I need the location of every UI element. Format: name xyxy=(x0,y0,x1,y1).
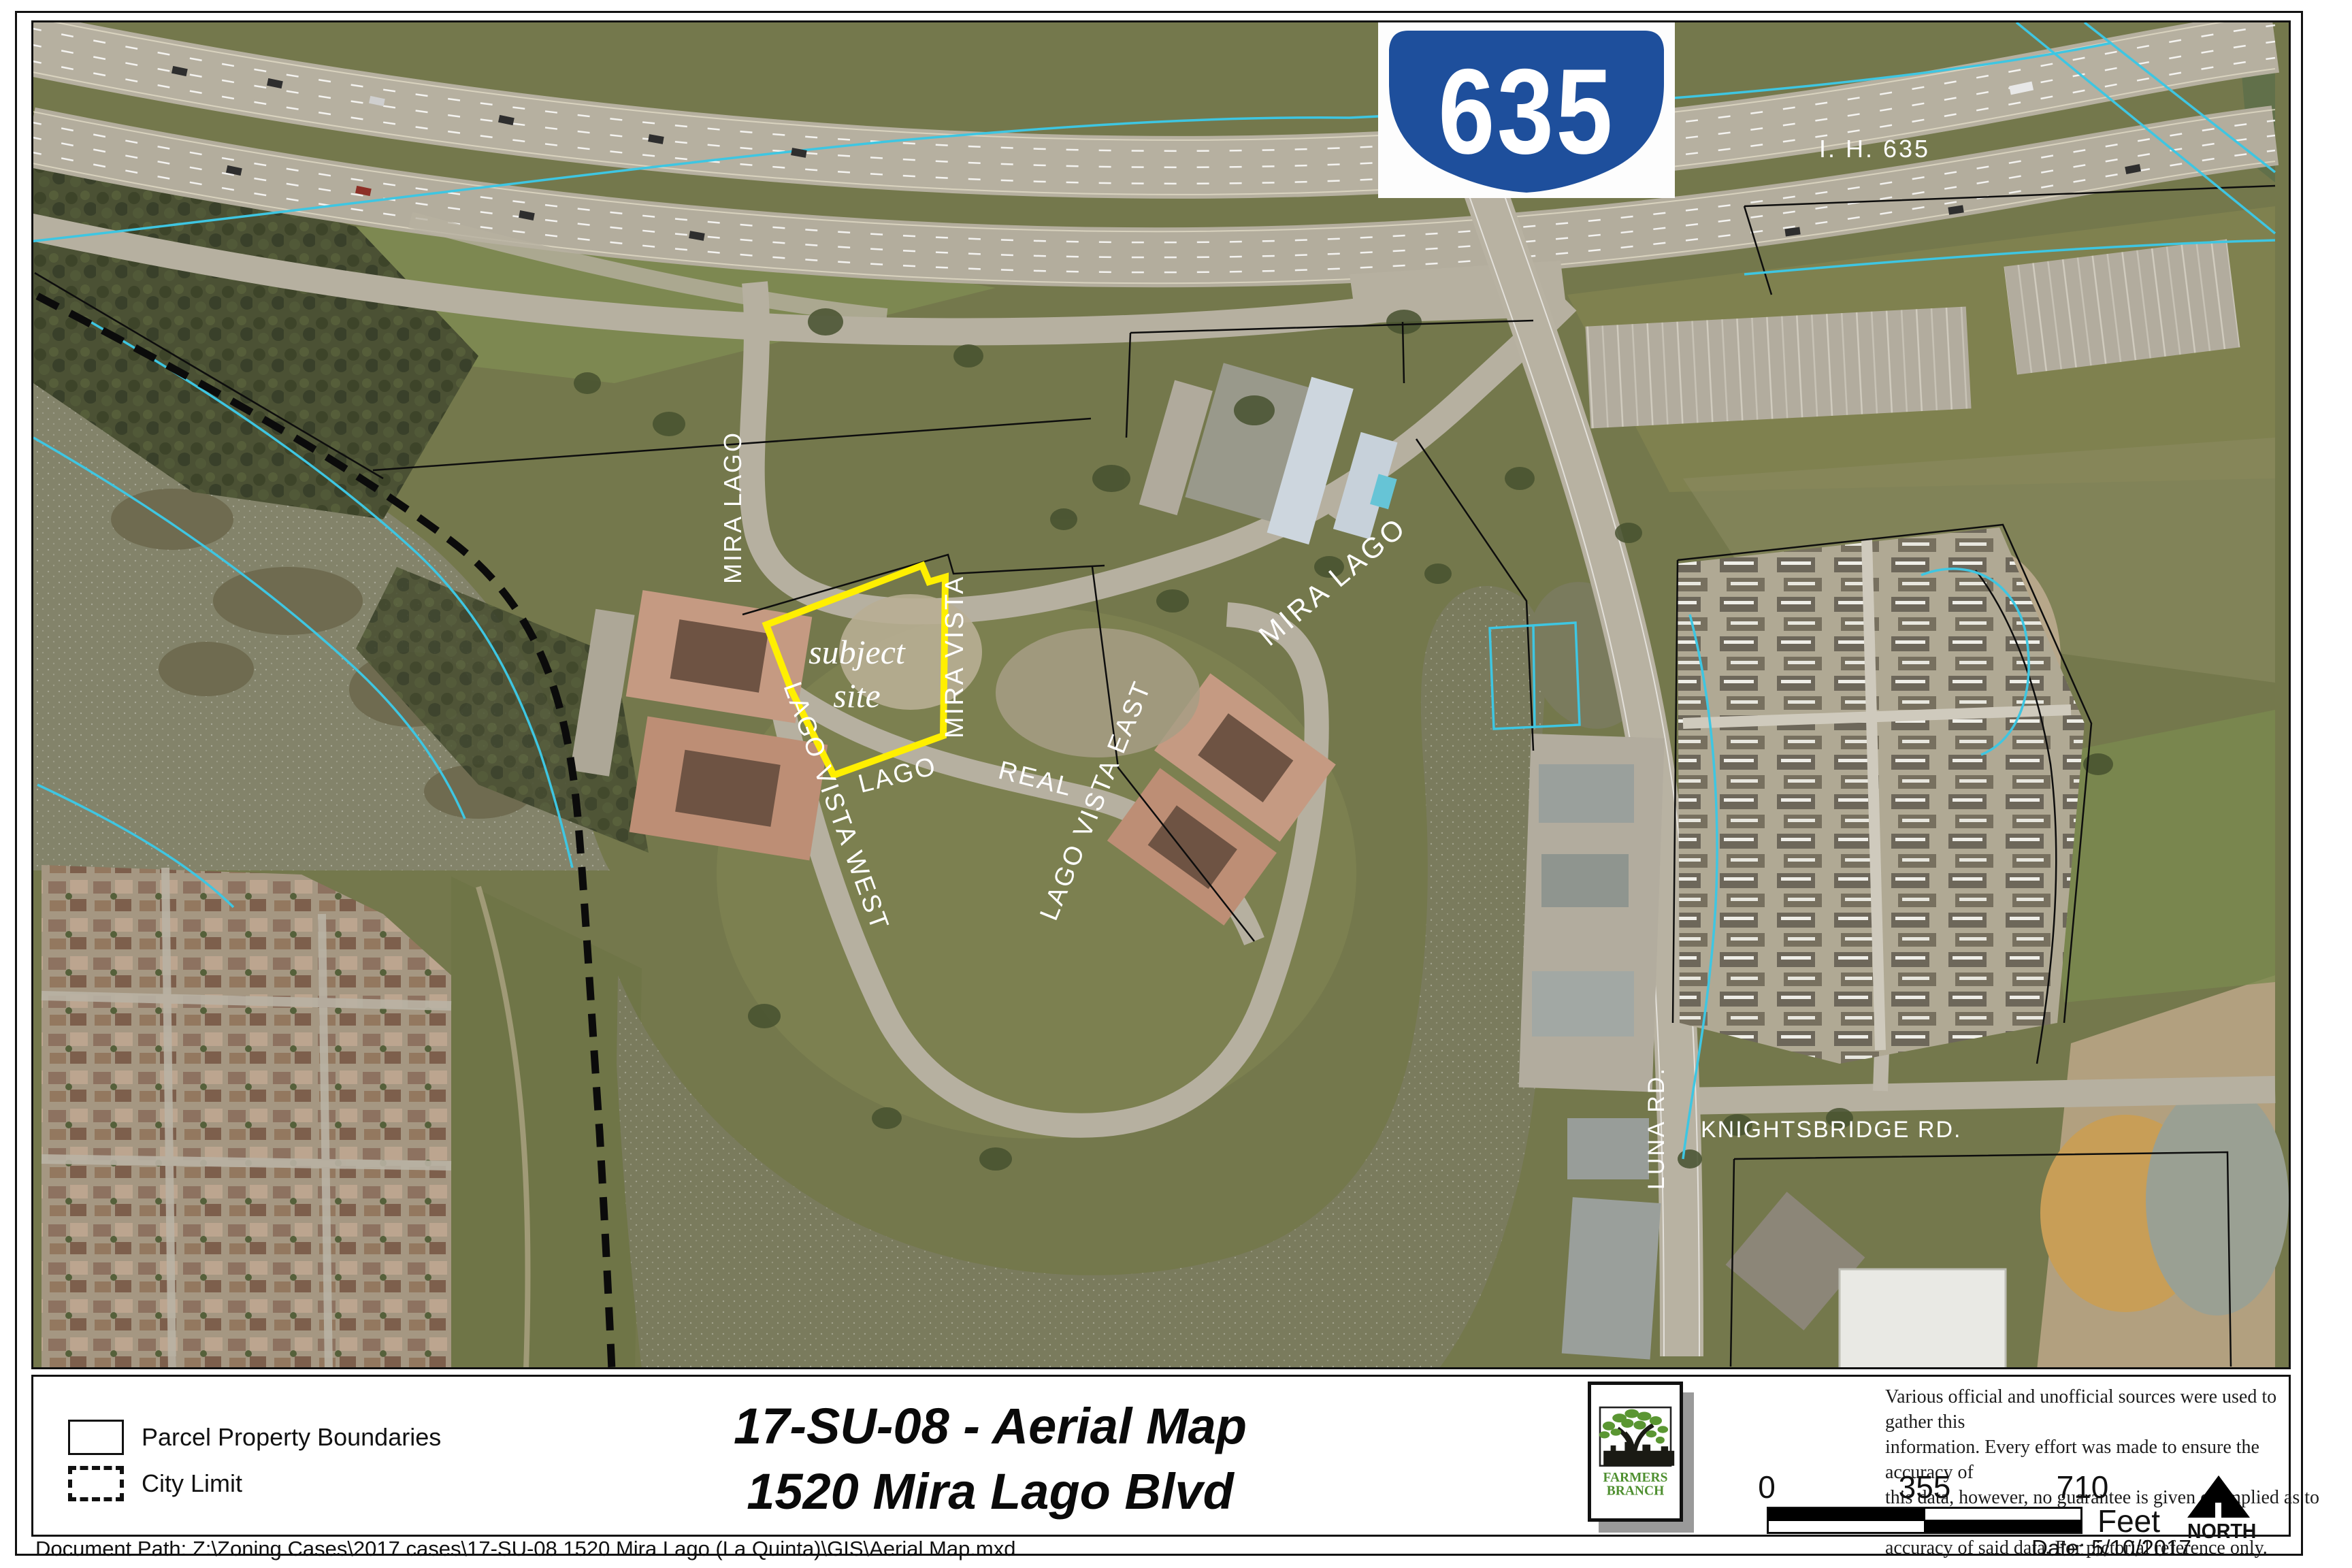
map-title: 17-SU-08 - Aerial Map 1520 Mira Lago Blv… xyxy=(599,1394,1382,1524)
interstate-635-shield: 635 xyxy=(1378,22,1675,198)
map-date: Date: 5/10/2017 xyxy=(2031,1535,2191,1561)
subject-site-line2: site xyxy=(833,676,880,715)
document-path: Document Path: Z:\Zoning Cases\2017 case… xyxy=(35,1537,1016,1561)
legend-label-parcel: Parcel Property Boundaries xyxy=(142,1420,441,1455)
scalebar xyxy=(1767,1507,2082,1534)
residential-neighborhood xyxy=(42,865,451,1367)
disclaimer-line1: Various official and unofficial sources … xyxy=(1885,1384,2321,1435)
farmers-branch-logo-art: FARMERS BRANCH xyxy=(1591,1385,1680,1518)
label-luna-rd: LUNA RD. xyxy=(1644,1066,1669,1190)
label-knightsbridge-rd: KNIGHTSBRIDGE RD. xyxy=(1701,1117,1961,1143)
legend-swatch-parcel xyxy=(68,1420,124,1455)
logo-text-line1: FARMERS xyxy=(1603,1471,1668,1485)
farmers-branch-logo: FARMERS BRANCH xyxy=(1588,1382,1683,1522)
scalebar-tick-355: 355 xyxy=(1897,1469,1952,1505)
north-arrow-label: NORTH xyxy=(2187,1519,2250,1543)
logo-text-line2: BRANCH xyxy=(1607,1484,1665,1499)
map-title-line2: 1520 Mira Lago Blvd xyxy=(599,1459,1382,1524)
scalebar-tick-710: 710 xyxy=(2055,1469,2110,1505)
shield-number: 635 xyxy=(1438,44,1615,179)
aerial-map: 635 I. H. 635 MIRA LAGO MIRA LAGO MIRA V… xyxy=(31,20,2291,1369)
aerial-map-canvas: 635 I. H. 635 MIRA LAGO MIRA LAGO MIRA V… xyxy=(33,22,2289,1367)
subject-site-line1: subject xyxy=(808,633,906,671)
label-mira-vista: MIRA VISTA xyxy=(941,575,969,738)
map-title-line1: 17-SU-08 - Aerial Map xyxy=(599,1394,1382,1459)
townhome-complex xyxy=(1678,527,2085,1064)
label-ih-635: I. H. 635 xyxy=(1819,135,1930,163)
scalebar-unit: Feet xyxy=(2097,1503,2160,1539)
legend-label-city-limit: City Limit xyxy=(142,1466,242,1501)
legend-swatch-city-limit xyxy=(68,1466,124,1501)
north-arrow-notch xyxy=(2215,1503,2221,1518)
scalebar-tick-0: 0 xyxy=(1739,1469,1794,1505)
label-mira-lago-west: MIRA LAGO xyxy=(719,431,747,584)
